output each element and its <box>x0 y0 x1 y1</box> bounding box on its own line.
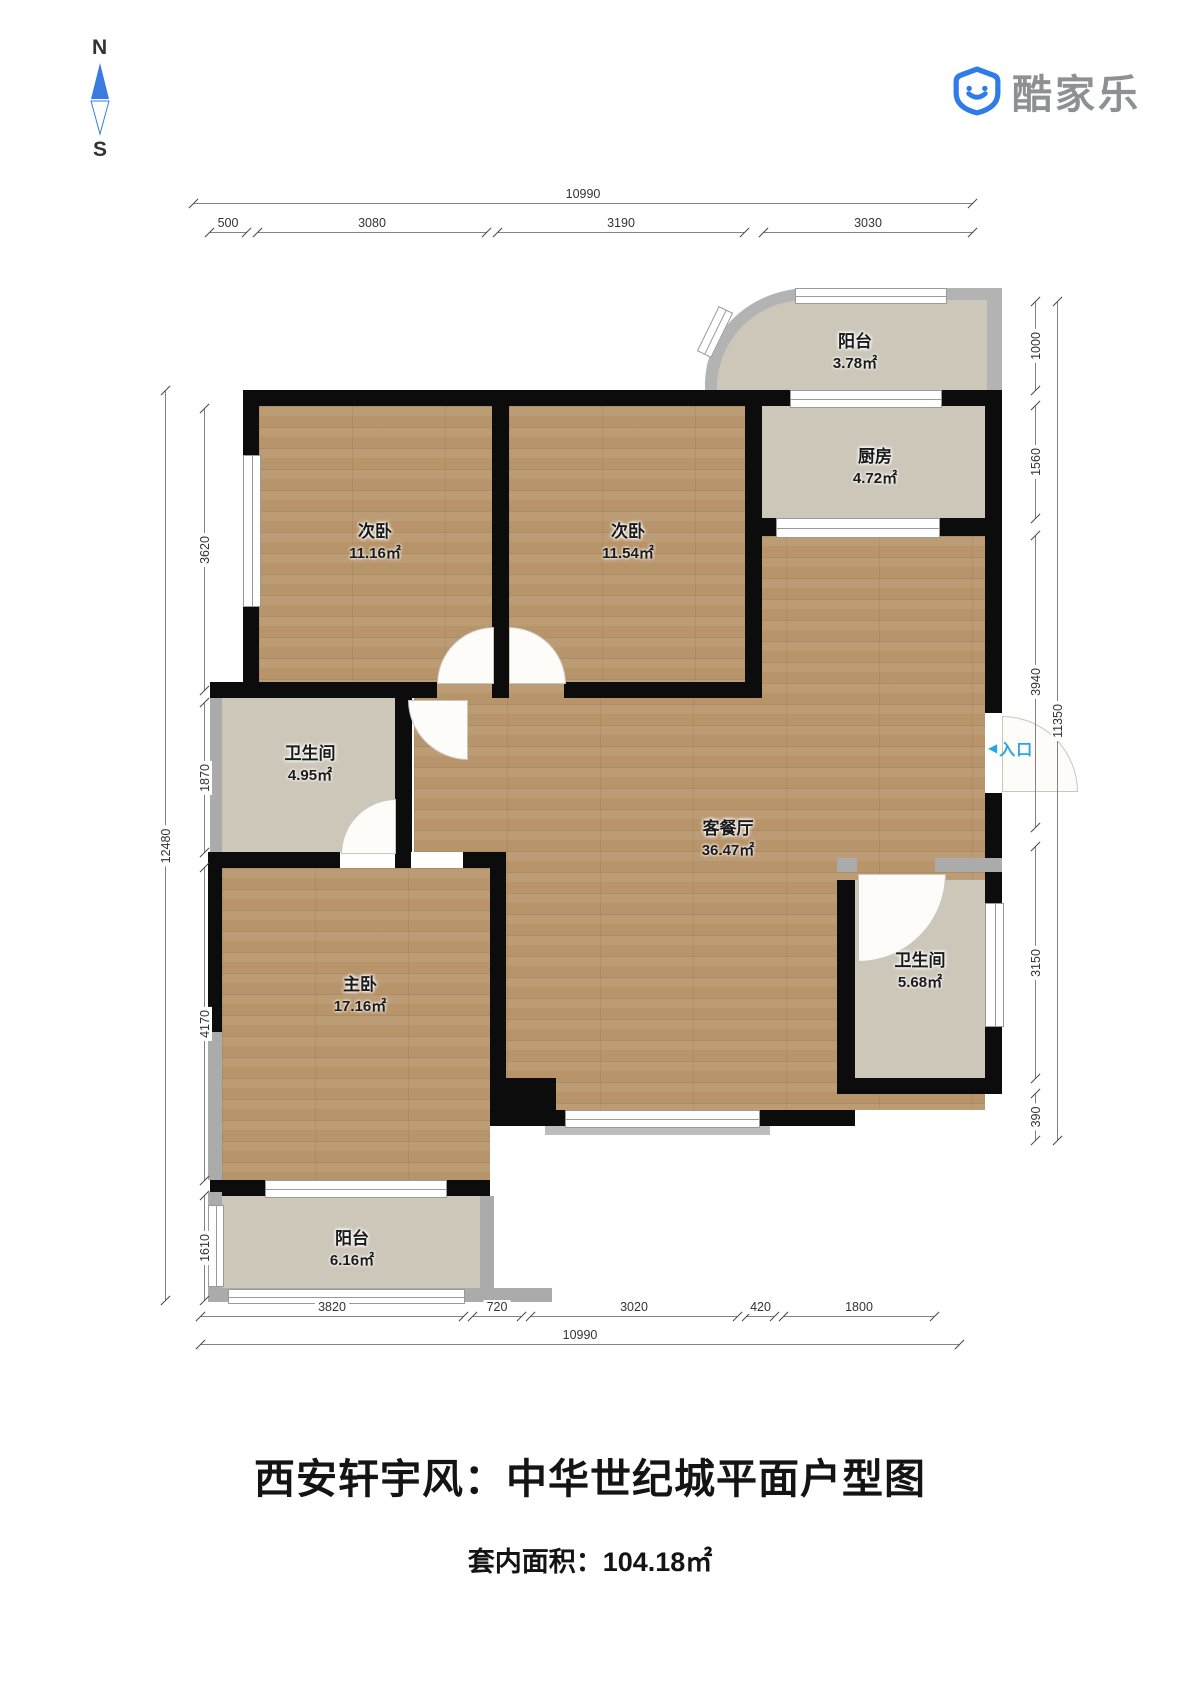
wall <box>938 518 1002 536</box>
light-wall <box>837 858 857 872</box>
wall <box>243 390 762 406</box>
wall <box>837 880 855 1078</box>
window <box>790 390 942 408</box>
dim-left-seg: 1870 <box>204 703 205 852</box>
compass-north-label: N <box>92 36 107 60</box>
dim-left-overall: 12480 <box>165 391 166 1300</box>
entrance-marker: ◀ 入口 <box>988 736 1033 760</box>
wall <box>395 852 411 868</box>
brand-name: 酷家乐 <box>1012 62 1141 120</box>
room-label-bathroom-1: 卫生间 4.95㎡ <box>245 744 375 785</box>
room-label-master: 主卧 17.16㎡ <box>295 975 425 1016</box>
light-wall <box>480 1196 494 1302</box>
window <box>776 518 940 538</box>
dim-top-seg: 3030 <box>763 232 973 233</box>
dim-bottom-seg: 720 <box>472 1316 522 1317</box>
window <box>795 288 947 304</box>
dim-right-seg: 1560 <box>1035 406 1036 518</box>
wall <box>492 682 509 698</box>
door-opening <box>411 852 463 868</box>
dim-bottom-seg: 1800 <box>783 1316 935 1317</box>
wall <box>395 698 412 852</box>
dim-bottom-overall: 10990 <box>200 1344 960 1345</box>
dim-top-seg: 3080 <box>257 232 487 233</box>
dim-right-seg: 3150 <box>1035 847 1036 1078</box>
master-bedroom-floor <box>222 868 490 1180</box>
page-title: 西安轩宇风：中华世纪城平面户型图 <box>0 1445 1180 1505</box>
dim-top-seg: 3190 <box>497 232 745 233</box>
area-subtitle: 套内面积：104.18㎡ <box>0 1540 1180 1579</box>
wall <box>938 390 1002 406</box>
compass-south-label: S <box>93 138 107 162</box>
room-label-balcony-bottom: 阳台 6.16㎡ <box>287 1229 417 1270</box>
window <box>265 1180 447 1198</box>
window <box>243 455 261 607</box>
dim-top-seg: 500 <box>209 232 247 233</box>
room-label-bedroom-a: 次卧 11.16㎡ <box>310 522 440 563</box>
dim-left-seg: 4170 <box>204 868 205 1180</box>
room-label-bathroom-2: 卫生间 5.68㎡ <box>855 951 985 992</box>
kujiale-shield-smiley-icon <box>952 66 1002 116</box>
floorplan-page: N S 酷家乐 <box>0 0 1200 1697</box>
dim-right-seg: 390 <box>1035 1094 1036 1140</box>
room-label-bedroom-b: 次卧 11.54㎡ <box>563 522 693 563</box>
wall <box>745 406 762 682</box>
window <box>985 903 1004 1027</box>
dim-right-seg: 3940 <box>1035 536 1036 827</box>
dim-right-seg: 1000 <box>1035 302 1036 390</box>
entrance-label: 入口 <box>999 736 1033 760</box>
wall <box>837 1078 1002 1094</box>
dim-bottom-seg: 3020 <box>530 1316 738 1317</box>
dim-left-seg: 3620 <box>204 409 205 690</box>
entrance-arrow-icon: ◀ <box>988 741 997 755</box>
room-label-living-dining: 客餐厅 36.47㎡ <box>663 819 793 860</box>
light-wall <box>208 1032 222 1180</box>
dim-bottom-seg: 420 <box>746 1316 775 1317</box>
room-label-balcony-top: 阳台 3.78㎡ <box>790 332 920 373</box>
dim-top-overall: 10990 <box>193 203 973 204</box>
compass-needle-icon <box>88 62 112 136</box>
dim-right-overall: 11350 <box>1057 302 1058 1140</box>
dim-left-seg: 1610 <box>204 1196 205 1300</box>
light-wall <box>935 858 1002 872</box>
wall <box>492 406 509 682</box>
wall <box>490 852 506 1078</box>
wall <box>208 852 222 1032</box>
wall <box>762 518 776 536</box>
window <box>565 1110 760 1128</box>
wall <box>564 682 762 698</box>
wall <box>762 390 792 406</box>
dim-bottom-seg: 3820 <box>200 1316 464 1317</box>
wall <box>210 682 437 698</box>
kujiale-logo: 酷家乐 <box>952 62 1141 120</box>
room-label-kitchen: 厨房 4.72㎡ <box>810 447 940 488</box>
wall <box>210 852 340 868</box>
door-opening <box>340 852 395 868</box>
